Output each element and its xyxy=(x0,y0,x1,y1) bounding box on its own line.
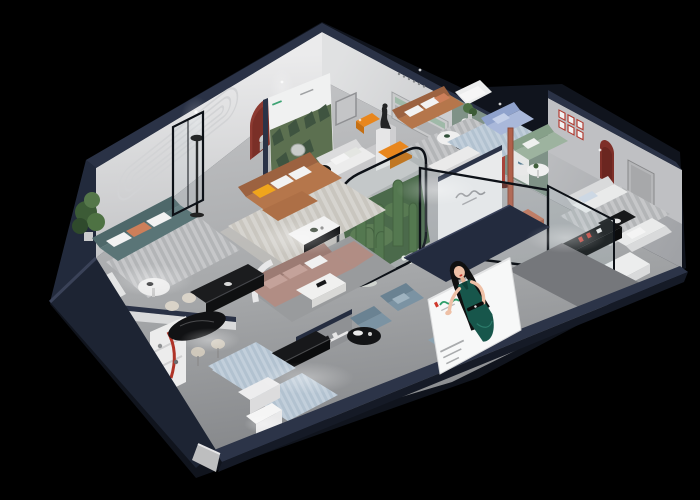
showroom-svg xyxy=(0,0,700,500)
showroom-render xyxy=(0,0,700,500)
silver-disc xyxy=(291,144,305,156)
black-round-side-table xyxy=(347,327,381,345)
glass-partition-panel xyxy=(173,112,203,215)
